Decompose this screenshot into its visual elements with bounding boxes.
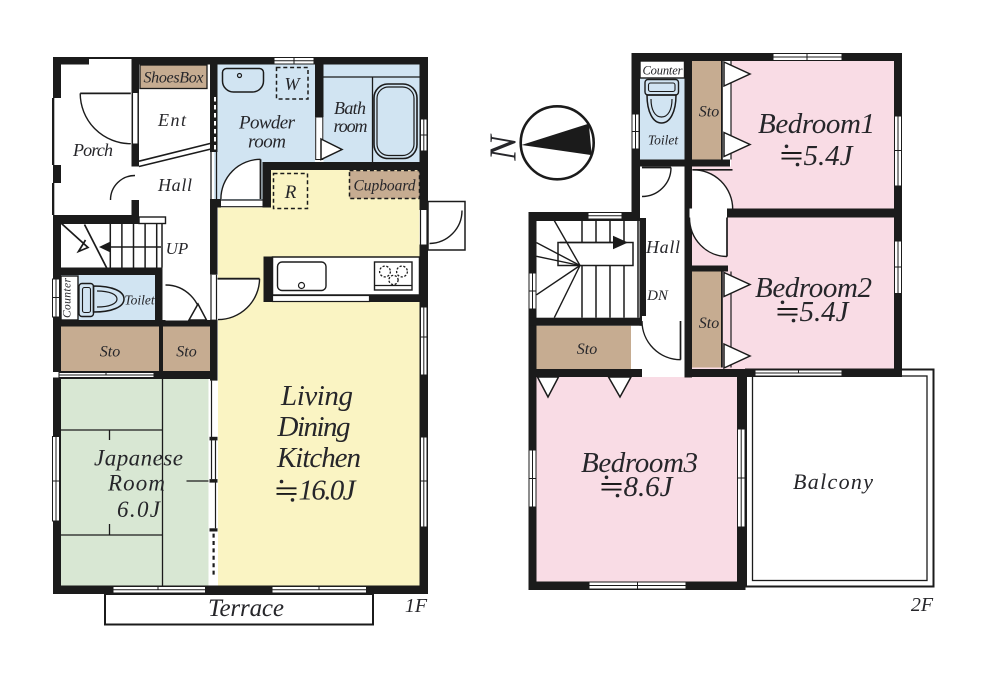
svg-text:Room: Room [107,471,165,496]
svg-text:Porch: Porch [72,140,113,160]
svg-text:Bedroom1: Bedroom1 [758,108,875,140]
svg-text:16.0J: 16.0J [299,475,357,507]
svg-text:Japanese: Japanese [94,446,183,471]
svg-text:Sto: Sto [699,315,719,332]
svg-text:Powder: Powder [238,113,296,134]
svg-text:Cupboard: Cupboard [354,178,416,195]
svg-text:R: R [284,182,297,203]
svg-text:Ent: Ent [157,110,187,130]
svg-text:Counter: Counter [643,64,683,78]
svg-text:DN: DN [646,288,669,304]
svg-text:8.6J: 8.6J [624,471,674,503]
svg-text:Living: Living [280,380,353,412]
svg-text:2F: 2F [911,594,934,616]
svg-text:N: N [483,133,525,162]
svg-text:ShoesBox: ShoesBox [144,70,204,87]
svg-text:6.0J: 6.0J [117,497,162,522]
svg-text:1F: 1F [405,595,428,617]
svg-text:5.4J: 5.4J [800,296,850,328]
svg-text:Kitchen: Kitchen [276,442,361,474]
svg-text:W: W [285,74,302,94]
svg-text:Hall: Hall [157,175,192,195]
svg-text:Sto: Sto [176,344,196,361]
svg-text:Hall: Hall [645,237,680,257]
svg-text:Sto: Sto [577,341,597,358]
svg-text:room: room [248,132,286,153]
svg-text:5.4J: 5.4J [804,140,854,172]
svg-text:Counter: Counter [62,277,74,318]
svg-text:Toilet: Toilet [648,133,680,148]
svg-text:Bath: Bath [334,98,366,118]
svg-text:room: room [334,116,368,136]
svg-text:Dining: Dining [277,411,351,443]
svg-text:UP: UP [166,239,189,258]
svg-text:Balcony: Balcony [793,469,873,494]
svg-text:Sto: Sto [100,344,120,361]
svg-text:Sto: Sto [699,104,719,121]
svg-text:Toilet: Toilet [124,293,156,308]
svg-text:Terrace: Terrace [208,595,284,622]
